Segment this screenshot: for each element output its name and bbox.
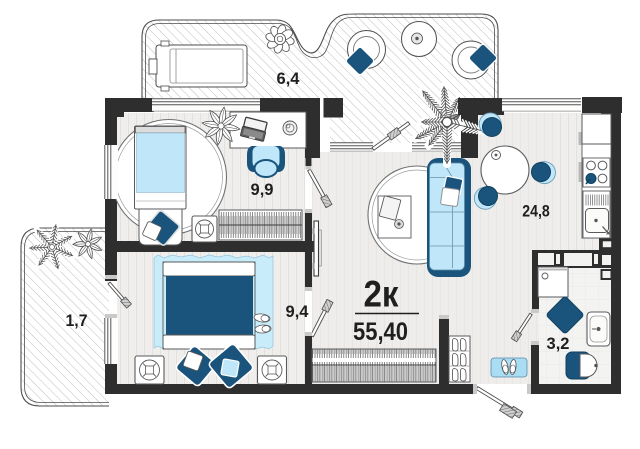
svg-text:1,7: 1,7: [66, 312, 88, 330]
svg-text:55,40: 55,40: [353, 318, 408, 346]
svg-text:6,4: 6,4: [277, 70, 301, 88]
svg-text:9,4: 9,4: [286, 303, 310, 321]
svg-text:3,2: 3,2: [547, 335, 570, 353]
svg-text:9,9: 9,9: [251, 181, 274, 199]
svg-text:2к: 2к: [364, 274, 399, 315]
svg-text:24,8: 24,8: [522, 203, 550, 221]
